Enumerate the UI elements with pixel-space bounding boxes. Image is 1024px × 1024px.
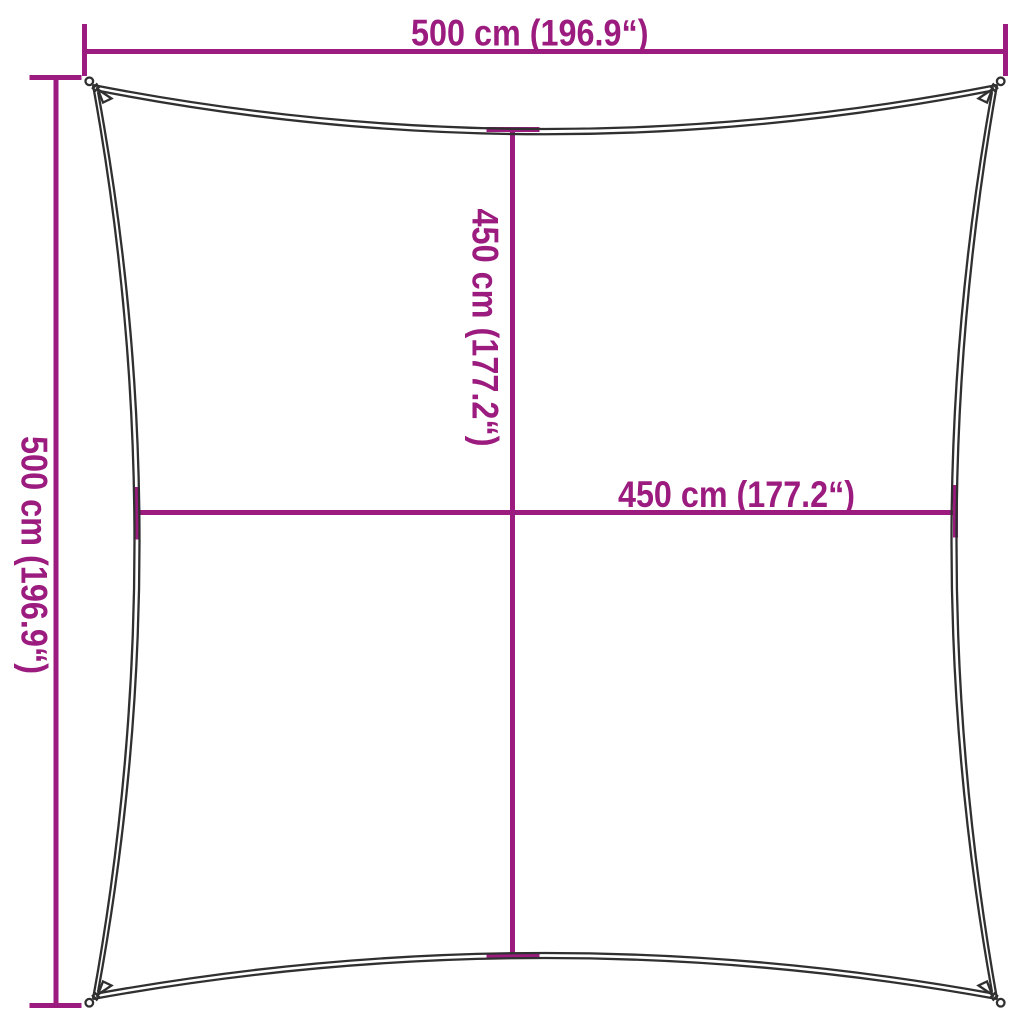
svg-text:450 cm (177.2“): 450 cm (177.2“) xyxy=(618,474,855,515)
svg-text:500 cm (196.9“): 500 cm (196.9“) xyxy=(14,436,55,674)
svg-text:450 cm (177.2“): 450 cm (177.2“) xyxy=(465,209,506,447)
svg-text:500 cm (196.9“): 500 cm (196.9“) xyxy=(411,13,649,54)
